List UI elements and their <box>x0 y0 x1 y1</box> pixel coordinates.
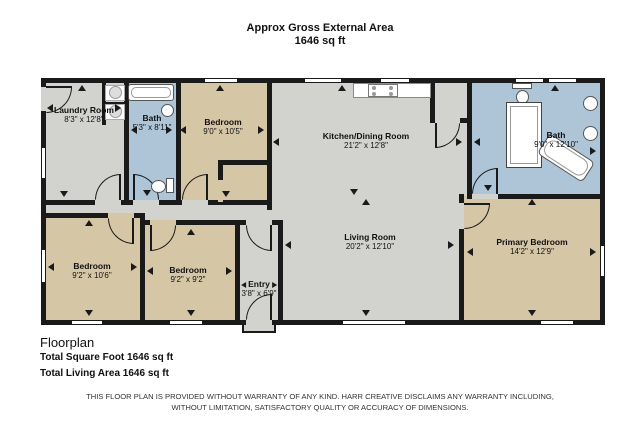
dimension-arrow <box>484 185 492 191</box>
door-opening <box>133 200 159 205</box>
dimension-arrow <box>273 138 279 146</box>
door-leaf <box>150 225 152 251</box>
burner-icon <box>372 86 376 90</box>
dimension-arrow <box>467 248 473 256</box>
burner-icon <box>389 86 393 90</box>
burner-icon <box>389 92 393 96</box>
dimension-arrow <box>528 310 536 316</box>
sink-icon <box>583 96 598 111</box>
dimension-arrow <box>338 85 346 91</box>
window <box>41 250 46 282</box>
room-label-bedroom-top: Bedroom 9'0" x 10'5" <box>203 117 242 137</box>
room-label-bedroom-mid: Bedroom 9'2" x 9'2" <box>169 265 206 285</box>
door-opening <box>472 194 498 199</box>
dimension-arrow <box>362 199 370 205</box>
wall-outer-right <box>600 78 605 325</box>
room-label-laundry: Laundry Room 8'3" x 12'8" <box>54 105 114 125</box>
room-label-kitchen-dining: Kitchen/Dining Room 21'2" x 12'8" <box>323 131 409 151</box>
plan-title: Approx Gross External Area 1646 sq ft <box>0 22 640 48</box>
dimension-arrow <box>285 241 291 249</box>
disclaimer: THIS FLOOR PLAN IS PROVIDED WITHOUT WARR… <box>0 391 640 413</box>
toilet-tank-icon <box>166 178 174 193</box>
dimension-arrow <box>456 138 462 146</box>
dimension-arrow <box>350 189 358 195</box>
wall-bedroom-kitchen <box>267 78 272 210</box>
footer-total-sqft: Total Square Foot 1646 sq ft <box>40 352 173 363</box>
burner-icon <box>372 92 376 96</box>
wall-kitchen-bath <box>467 78 472 199</box>
footer-living-area: Total Living Area 1646 sq ft <box>40 368 169 379</box>
window <box>205 78 237 83</box>
dimension-arrow <box>362 310 370 316</box>
dimension-arrow <box>590 147 596 155</box>
room-label-primary: Primary Bedroom 14'2" x 12'9" <box>496 237 567 257</box>
dimension-arrow <box>272 282 277 288</box>
window <box>305 78 341 83</box>
room-label-bath-main: Bath 9'0" x 12'10" <box>534 130 578 150</box>
room-label-entry: Entry 3'8" x 6'9" <box>241 279 277 299</box>
dimension-arrow <box>143 190 151 196</box>
disclaimer-line2: WITHOUT LIMITATION, SATISFACTORY QUALITY… <box>0 402 640 413</box>
dimension-arrow <box>551 85 559 91</box>
toilet-bowl-icon <box>151 180 166 193</box>
wall-outer-bottom <box>41 320 605 325</box>
door-opening <box>246 320 272 325</box>
window <box>41 148 46 178</box>
dimension-arrow <box>448 241 454 249</box>
door-opening <box>95 200 121 205</box>
door-leaf <box>133 174 135 200</box>
plan-title-line1: Approx Gross External Area <box>0 22 640 35</box>
window <box>541 320 573 325</box>
bathtub-basin-icon <box>131 87 171 98</box>
door-leaf <box>464 203 490 205</box>
dimension-arrow <box>226 267 232 275</box>
dimension-arrow <box>131 263 137 271</box>
room-label-bath-small: Bath 5'3" x 8'11" <box>133 113 172 133</box>
door-leaf <box>132 218 134 244</box>
dimension-arrow <box>216 85 224 91</box>
room-label-bedroom-left: Bedroom 9'2" x 10'6" <box>72 261 111 281</box>
dimension-arrow <box>60 191 68 197</box>
wall-bedmid-entry <box>235 220 240 325</box>
dimension-arrow <box>590 248 596 256</box>
washer-drum-icon <box>109 86 122 99</box>
plan-title-line2: 1646 sq ft <box>0 35 640 48</box>
wall-bath-bedroom <box>176 78 181 205</box>
door-leaf <box>206 174 208 200</box>
dimension-arrow <box>78 85 86 91</box>
porch-step <box>242 325 276 333</box>
dimension-arrow <box>85 220 93 226</box>
room-label-living: Living Room 20'2" x 12'10" <box>344 232 395 252</box>
dimension-arrow <box>187 310 195 316</box>
dimension-arrow <box>258 126 264 134</box>
door-opening <box>182 200 208 205</box>
dimension-arrow <box>241 282 246 288</box>
door-leaf <box>435 123 437 148</box>
toilet-tank-icon <box>512 83 532 89</box>
disclaimer-line1: THIS FLOOR PLAN IS PROVIDED WITHOUT WARR… <box>0 391 640 402</box>
dimension-arrow <box>147 267 153 275</box>
window <box>72 320 102 325</box>
door-leaf <box>46 86 72 88</box>
door-leaf <box>270 225 272 251</box>
window <box>170 320 202 325</box>
dimension-arrow <box>222 191 230 197</box>
wall-entry-living <box>278 220 283 325</box>
dimension-arrow <box>528 199 536 205</box>
sink-icon <box>583 126 598 141</box>
dimension-arrow <box>115 104 121 112</box>
dimension-arrow <box>48 263 54 271</box>
footer-title: Floorplan <box>40 335 94 350</box>
door-leaf <box>496 168 498 194</box>
door-leaf <box>119 174 121 200</box>
window <box>600 246 605 276</box>
dimension-arrow <box>47 104 53 112</box>
dimension-arrow <box>474 138 480 146</box>
dimension-arrow <box>180 126 186 134</box>
dimension-arrow <box>85 310 93 316</box>
wall-closet-top <box>218 160 272 165</box>
window <box>549 78 576 83</box>
window <box>343 320 405 325</box>
dimension-arrow <box>187 229 195 235</box>
wall-bedleft-right <box>140 213 145 325</box>
